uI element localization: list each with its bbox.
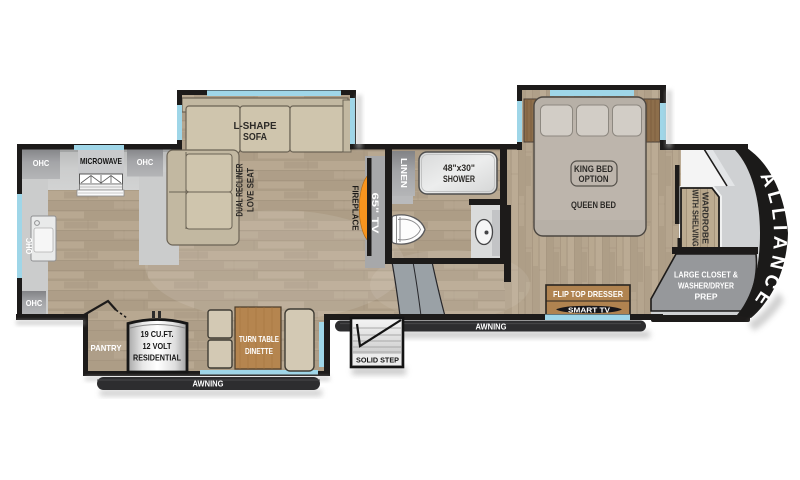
svg-text:L-SHAPE: L-SHAPE (234, 121, 277, 132)
svg-text:OHC: OHC (137, 157, 154, 167)
svg-text:TURN TABLE: TURN TABLE (239, 334, 279, 344)
svg-text:OPTION: OPTION (579, 174, 609, 184)
svg-text:OHC: OHC (26, 298, 43, 308)
svg-text:DINETTE: DINETTE (245, 346, 273, 356)
svg-text:WASHER/DRYER: WASHER/DRYER (678, 281, 734, 291)
svg-text:SOFA: SOFA (243, 132, 267, 143)
svg-text:WARDROBE: WARDROBE (701, 192, 711, 244)
svg-text:19 CU.FT.: 19 CU.FT. (141, 329, 174, 339)
svg-text:OHC: OHC (25, 238, 34, 255)
svg-text:LOVE SEAT: LOVE SEAT (246, 168, 257, 212)
svg-text:KING BED: KING BED (574, 164, 613, 174)
svg-text:OHC: OHC (33, 158, 50, 168)
svg-text:DUAL RECLINER: DUAL RECLINER (235, 163, 246, 216)
svg-text:LINEN: LINEN (399, 158, 409, 188)
svg-text:SOLID STEP: SOLID STEP (356, 356, 399, 365)
svg-text:SHOWER: SHOWER (443, 174, 475, 185)
svg-text:LARGE CLOSET &: LARGE CLOSET & (674, 270, 738, 280)
svg-text:AWNING: AWNING (193, 379, 224, 389)
svg-text:48"x30": 48"x30" (443, 163, 475, 174)
svg-text:FIREPLACE: FIREPLACE (351, 186, 361, 231)
svg-text:AWNING: AWNING (476, 322, 507, 332)
svg-text:QUEEN BED: QUEEN BED (571, 200, 616, 211)
svg-text:FLIP TOP DRESSER: FLIP TOP DRESSER (553, 289, 623, 299)
svg-text:PANTRY: PANTRY (91, 343, 122, 353)
svg-text:65" TV: 65" TV (370, 193, 380, 234)
svg-text:12 VOLT: 12 VOLT (143, 341, 173, 351)
svg-text:MICROWAVE: MICROWAVE (80, 156, 122, 166)
svg-text:WITH SHELVING: WITH SHELVING (691, 190, 701, 247)
svg-text:PREP: PREP (695, 292, 718, 302)
svg-text:SMART TV: SMART TV (568, 306, 610, 315)
svg-text:RESIDENTIAL: RESIDENTIAL (133, 353, 181, 363)
